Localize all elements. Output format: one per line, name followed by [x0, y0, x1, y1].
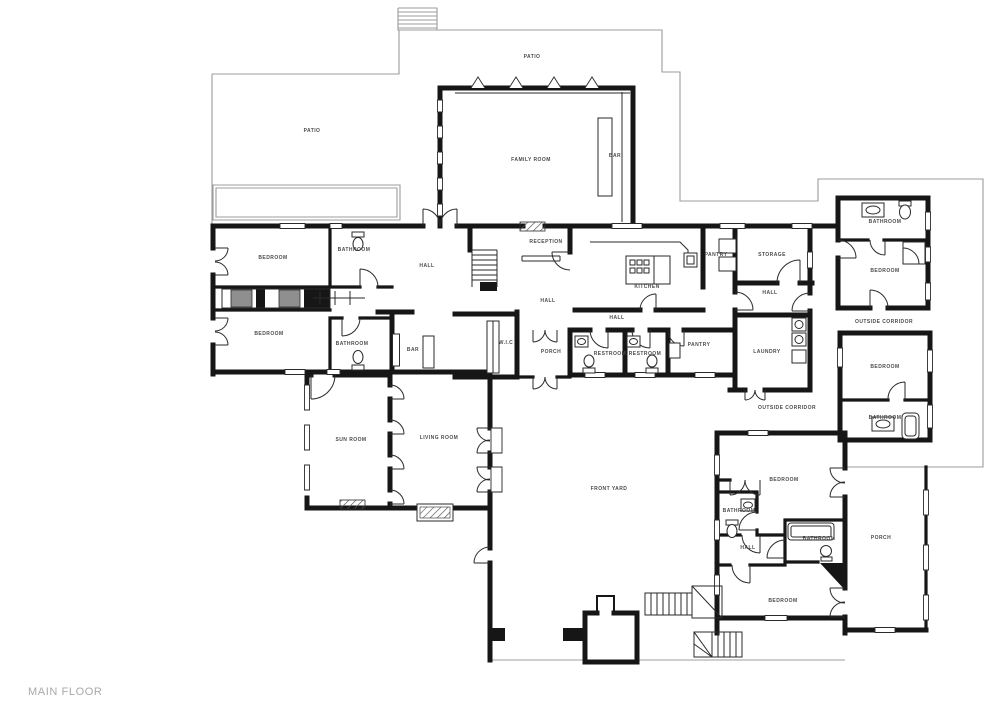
room-label-bathroom-nw: BATHROOM: [338, 247, 371, 253]
toilet-icon: [352, 351, 364, 371]
room-label-hall-center: HALL: [540, 298, 555, 304]
room-label-bathroom-s2: BATHROOM: [803, 536, 836, 542]
room-label-bathroom-w: BATHROOM: [336, 341, 369, 347]
room-label-bedroom-s2: BEDROOM: [768, 598, 797, 604]
room-label-bedroom-nw: BEDROOM: [258, 255, 287, 261]
room-label-pantry-south: PANTRY: [688, 342, 711, 348]
bar-shelf: [393, 334, 400, 366]
pantry-shelf-2: [719, 257, 736, 271]
bathroom-s2-fixtures: [788, 523, 834, 561]
closet-box-2: [279, 290, 300, 307]
room-label-wic: W.I.C: [499, 340, 513, 346]
bathroom-s1-fixtures: [726, 499, 755, 538]
room-label-bedroom-e: BEDROOM: [870, 364, 899, 370]
room-label-bedroom-s1: BEDROOM: [769, 477, 798, 483]
room-label-hall-west: HALL: [419, 263, 434, 269]
closet-box-1: [231, 290, 252, 307]
floorplan: PATIO PATIO FAMILY ROOM BAR BEDROOM BATH…: [0, 0, 992, 712]
room-label-outside-corridor-ne: OUTSIDE CORRIDOR: [855, 319, 913, 325]
room-label-reception: RECEPTION: [529, 239, 562, 245]
stair-landing-block: [480, 282, 497, 291]
door-arcs: [215, 209, 905, 617]
yard-wall-nub: [490, 628, 505, 641]
room-label-family-room: FAMILY ROOM: [511, 157, 551, 163]
main-walls: [213, 88, 930, 662]
room-label-porch-center: PORCH: [541, 349, 561, 355]
room-label-front-yard: FRONT YARD: [591, 486, 628, 492]
room-label-bathroom-s1: BATHROOM: [723, 508, 756, 514]
room-label-hall-east: HALL: [762, 290, 777, 296]
room-label-sun-room: SUN ROOM: [335, 437, 366, 443]
chimney-outline: [597, 596, 614, 613]
room-label-laundry: LAUNDRY: [753, 349, 780, 355]
room-label-bathroom-ne: BATHROOM: [869, 219, 902, 225]
pantry2-shelf: [669, 343, 680, 358]
closet-stub-1: [256, 289, 265, 308]
structure-nub: [563, 628, 585, 641]
sunroom-fireplace: [340, 500, 365, 509]
room-label-kitchen: KITCHEN: [634, 284, 659, 290]
bar-counter: [423, 336, 434, 368]
room-label-bedroom-w: BEDROOM: [254, 331, 283, 337]
room-label-living-room: LIVING ROOM: [420, 435, 459, 441]
room-label-porch-se: PORCH: [871, 535, 891, 541]
room-label-patio-left: PATIO: [304, 128, 321, 134]
room-label-outside-corridor-e: OUTSIDE CORRIDOR: [758, 405, 816, 411]
room-label-storage: STORAGE: [758, 252, 786, 258]
floorplan-drawing: [0, 0, 992, 712]
room-label-bathroom-e: BATHROOM: [869, 415, 902, 421]
room-label-hall-mid: HALL: [609, 315, 624, 321]
interior-walls: [213, 228, 930, 630]
room-label-bedroom-ne: BEDROOM: [870, 268, 899, 274]
room-label-bar-small: BAR: [407, 347, 419, 353]
room-label-patio-top: PATIO: [524, 54, 541, 60]
room-label-hall-south: HALL: [740, 545, 755, 551]
restroom1-fixtures: [575, 336, 595, 373]
room-label-pantry-north: PANTRY: [705, 252, 728, 258]
room-label-bar-family: BAR: [609, 153, 621, 159]
room-label-restroom-2: RESTROOM: [629, 351, 662, 357]
bathroom-ne-fixtures: [862, 201, 925, 264]
under-stair-wedge: [820, 563, 845, 590]
page-title: MAIN FLOOR: [28, 686, 102, 698]
pantry-shelf-1: [719, 239, 736, 253]
room-label-restroom-1: RESTROOM: [594, 351, 627, 357]
